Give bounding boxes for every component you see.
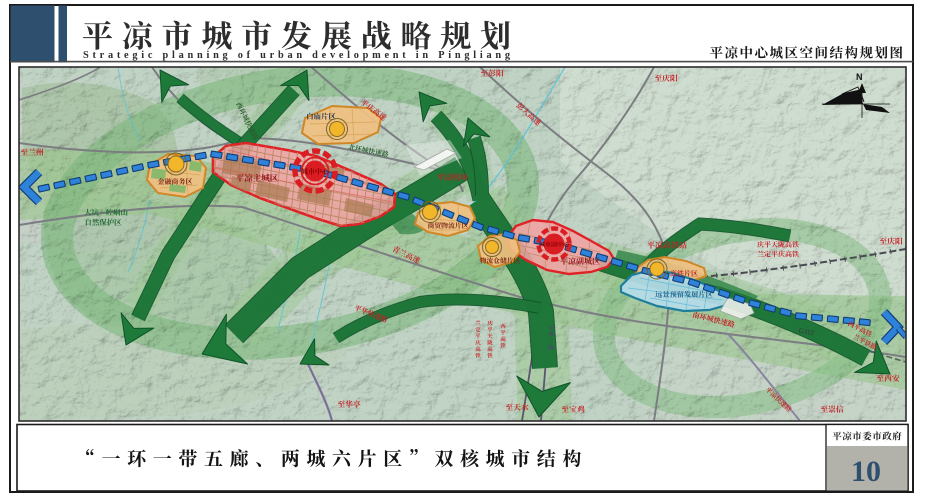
svg-text:10: 10 <box>851 455 881 488</box>
svg-text:Strategic planning of urban de: Strategic planning of urban development … <box>83 50 514 61</box>
svg-text:N: N <box>856 72 863 82</box>
